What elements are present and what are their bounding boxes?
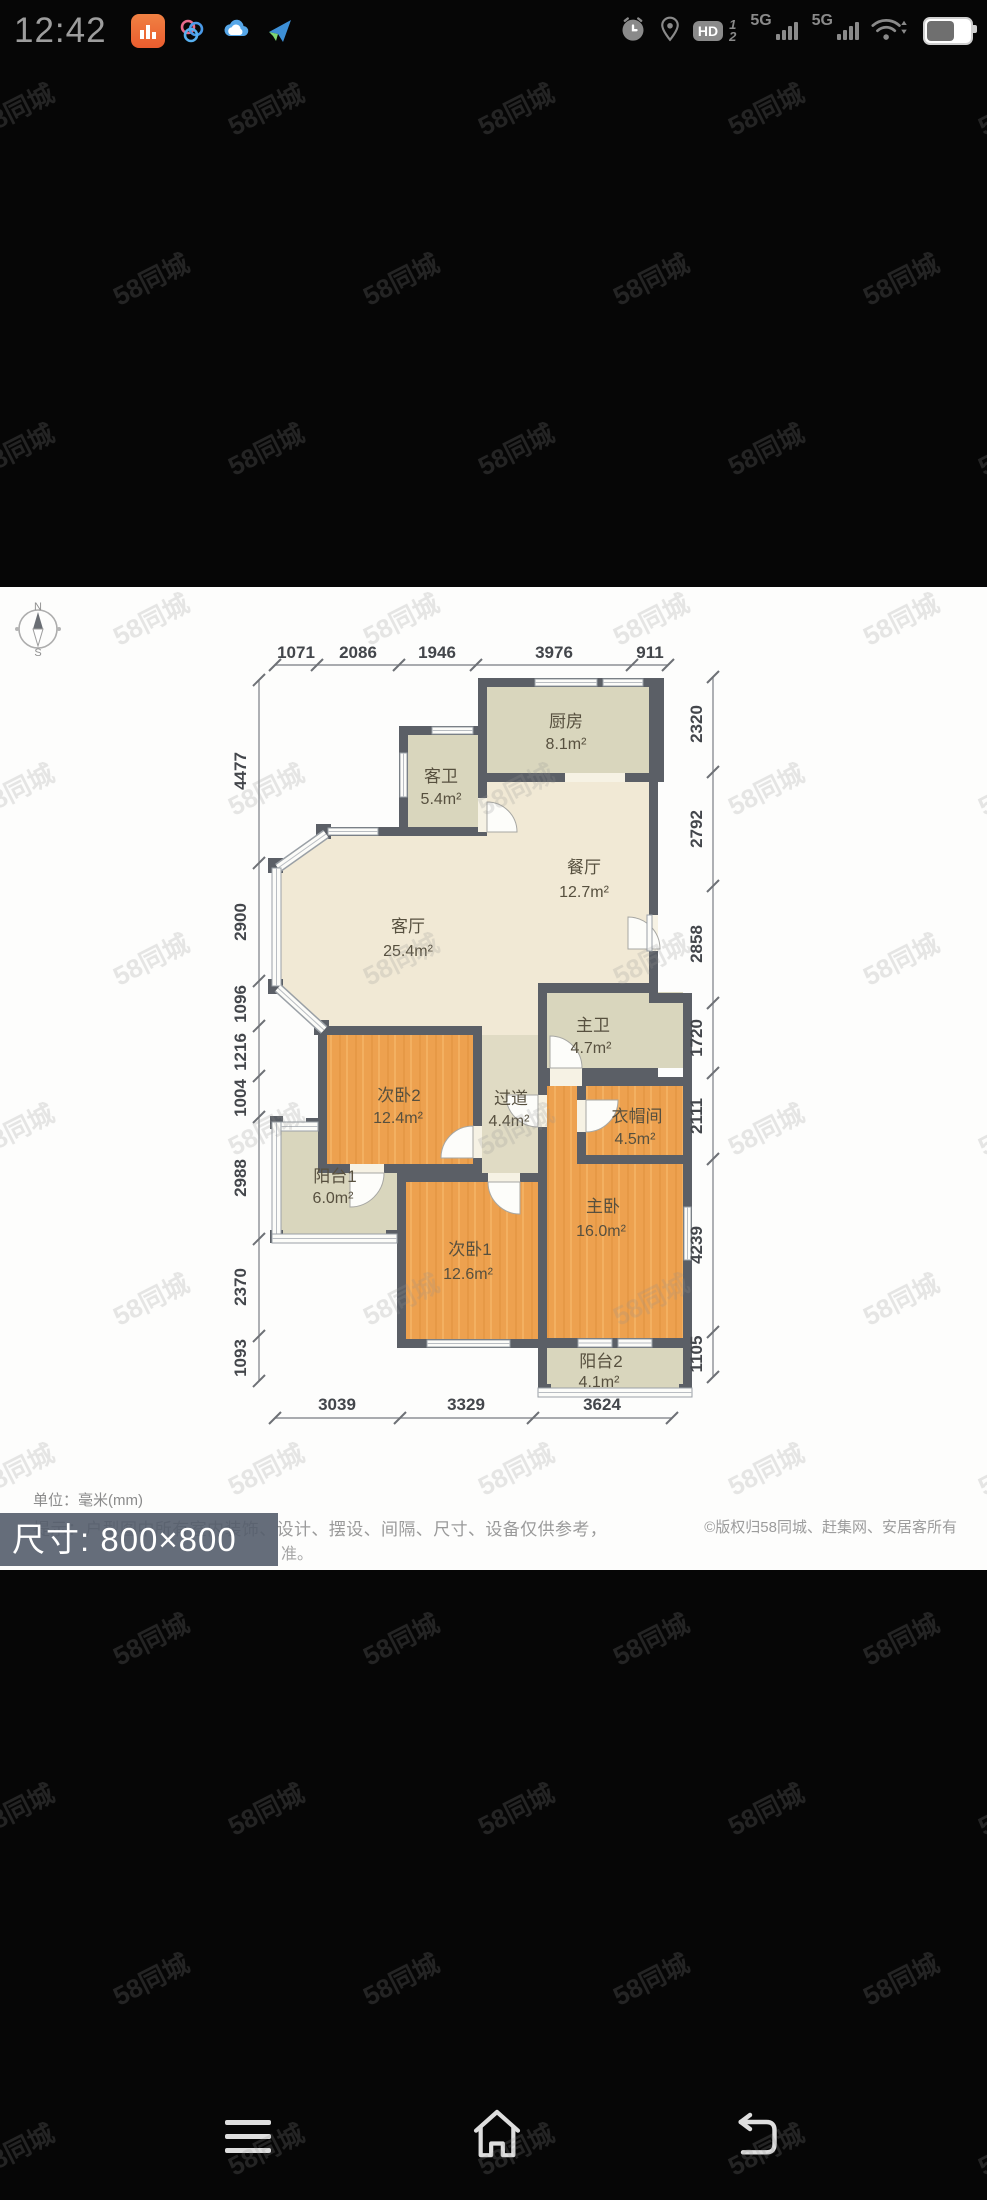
svg-text:1093: 1093 <box>231 1339 250 1377</box>
svg-text:阳台2: 阳台2 <box>579 1352 622 1371</box>
watermark-text: 58同城 <box>971 74 987 144</box>
watermark-text: 58同城 <box>0 74 60 144</box>
back-icon <box>729 2110 785 2162</box>
clover-notification-icon <box>175 14 209 48</box>
watermark-text: 58同城 <box>471 414 560 484</box>
watermark-text: 58同城 <box>971 414 987 484</box>
svg-text:次卧2: 次卧2 <box>377 1086 420 1105</box>
watermark-text: 58同城 <box>471 1774 560 1844</box>
svg-text:5.4m²: 5.4m² <box>421 791 463 808</box>
watermark-text: 58同城 <box>221 74 310 144</box>
home-button[interactable] <box>462 2098 532 2168</box>
alarm-icon <box>619 15 647 48</box>
svg-text:2988: 2988 <box>231 1159 250 1197</box>
svg-text:1946: 1946 <box>418 643 456 662</box>
svg-text:3976: 3976 <box>535 643 573 662</box>
watermark-text: 58同城 <box>606 1944 695 2014</box>
svg-text:4.1m²: 4.1m² <box>579 1374 621 1391</box>
svg-text:1004: 1004 <box>231 1079 250 1117</box>
watermark-text: 58同城 <box>106 1944 195 2014</box>
status-bar: 12:42 <box>0 0 987 62</box>
svg-text:S: S <box>34 647 41 659</box>
svg-text:3039: 3039 <box>318 1395 356 1414</box>
floorplan-drawing: N S <box>0 587 987 1570</box>
watermark-text: 58同城 <box>721 1774 810 1844</box>
svg-text:餐厅: 餐厅 <box>567 858 601 877</box>
svg-text:N: N <box>34 601 42 613</box>
svg-text:1071: 1071 <box>277 643 315 662</box>
svg-text:2792: 2792 <box>687 810 706 848</box>
watermark-text: 58同城 <box>106 1604 195 1674</box>
watermark-text: 58同城 <box>606 244 695 314</box>
menu-icon <box>225 2120 271 2153</box>
watermark-text: 58同城 <box>856 1604 945 1674</box>
svg-text:4.5m²: 4.5m² <box>615 1131 657 1148</box>
watermark-text: 58同城 <box>721 74 810 144</box>
svg-text:1216: 1216 <box>231 1033 250 1071</box>
hd-icon: HD <box>693 21 723 41</box>
network-type-label-2: 5G <box>812 12 833 30</box>
svg-text:16.0m²: 16.0m² <box>576 1223 626 1240</box>
watermark-text: 58同城 <box>606 1604 695 1674</box>
back-button[interactable] <box>722 2101 792 2171</box>
unit-note: 单位：毫米(mm) <box>33 1489 143 1510</box>
svg-text:911: 911 <box>636 643 663 662</box>
signal-bars-icon-1 <box>774 22 798 40</box>
svg-text:衣帽间: 衣帽间 <box>612 1107 663 1126</box>
watermark-text: 58同城 <box>356 1604 445 1674</box>
cloud-notification-icon <box>219 14 253 48</box>
svg-text:4477: 4477 <box>231 752 250 790</box>
svg-text:12.7m²: 12.7m² <box>559 884 609 901</box>
watermark-text: 58同城 <box>221 414 310 484</box>
signal-sim1: 5G <box>750 22 797 40</box>
svg-text:3329: 3329 <box>447 1395 485 1414</box>
svg-text:2086: 2086 <box>339 643 377 662</box>
svg-text:主卧: 主卧 <box>586 1197 620 1216</box>
watermark-text: 58同城 <box>721 414 810 484</box>
svg-text:3624: 3624 <box>583 1395 621 1414</box>
svg-text:12.4m²: 12.4m² <box>373 1110 423 1127</box>
svg-text:4.7m²: 4.7m² <box>571 1040 613 1057</box>
watermark-text: 58同城 <box>856 244 945 314</box>
network-type-label-1: 5G <box>750 12 771 30</box>
svg-text:25.4m²: 25.4m² <box>383 943 433 960</box>
watermark-text: 58同城 <box>0 414 60 484</box>
svg-text:12.6m²: 12.6m² <box>443 1266 493 1283</box>
disclaimer-fragment: 准。 <box>281 1540 313 1564</box>
image-size-badge: 尺寸: 800×800 <box>0 1513 278 1566</box>
battery-icon <box>923 17 973 45</box>
svg-text:2320: 2320 <box>687 705 706 743</box>
watermark-text: 58同城 <box>356 1944 445 2014</box>
notification-app-icon <box>131 14 165 48</box>
watermark-text: 58同城 <box>106 244 195 314</box>
watermark-text: 58同城 <box>471 74 560 144</box>
location-icon <box>657 15 683 48</box>
svg-text:次卧1: 次卧1 <box>448 1240 491 1259</box>
floorplan-image[interactable]: N S <box>0 587 987 1570</box>
compass-icon: N S <box>15 601 61 659</box>
svg-text:主卫: 主卫 <box>576 1016 610 1035</box>
svg-text:4239: 4239 <box>687 1226 706 1264</box>
clock-time: 12:42 <box>14 11 107 51</box>
svg-text:1720: 1720 <box>687 1019 706 1057</box>
watermark-text: 58同城 <box>356 244 445 314</box>
svg-text:过道: 过道 <box>494 1089 528 1108</box>
svg-text:6.0m²: 6.0m² <box>313 1190 355 1207</box>
wifi-icon <box>869 14 909 49</box>
sim-slot-indicator: 1 2 <box>729 19 736 43</box>
svg-text:2111: 2111 <box>687 1098 706 1134</box>
copyright-text: ©版权归58同城、赶集网、安居客所有 <box>704 1516 957 1537</box>
svg-text:2370: 2370 <box>231 1268 250 1306</box>
sim-slot-2: 2 <box>729 31 736 43</box>
svg-text:8.1m²: 8.1m² <box>546 736 588 753</box>
watermark-text: 58同城 <box>221 1774 310 1844</box>
home-icon <box>467 2105 527 2161</box>
watermark-text: 58同城 <box>0 1774 60 1844</box>
svg-text:阳台1: 阳台1 <box>313 1167 356 1186</box>
watermark-text: 58同城 <box>971 1774 987 1844</box>
svg-text:厨房: 厨房 <box>549 712 583 731</box>
signal-sim2: 5G <box>812 22 859 40</box>
paper-plane-notification-icon <box>263 14 297 48</box>
phone-screen: 12:42 <box>0 0 987 2200</box>
android-nav-bar <box>0 2080 987 2200</box>
svg-text:1105: 1105 <box>687 1336 706 1373</box>
signal-bars-icon-2 <box>835 22 859 40</box>
svg-text:客厅: 客厅 <box>391 917 425 936</box>
watermark-text: 58同城 <box>856 1944 945 2014</box>
svg-text:4.4m²: 4.4m² <box>489 1113 531 1130</box>
svg-text:客卫: 客卫 <box>424 767 458 786</box>
svg-text:2900: 2900 <box>231 903 250 941</box>
svg-text:1096: 1096 <box>231 985 250 1023</box>
recents-button[interactable] <box>213 2101 283 2171</box>
svg-text:2858: 2858 <box>687 925 706 963</box>
